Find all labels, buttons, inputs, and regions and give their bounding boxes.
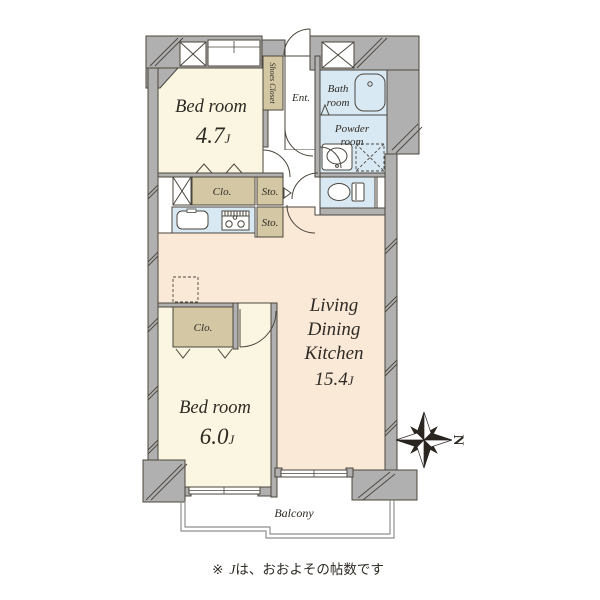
ldk-label-3: Kitchen [303,343,363,364]
wall-bedroom2-top [158,303,237,307]
bedroom-1-label: Bed room [175,97,247,117]
wall-bedroom2-door-stub [233,303,238,349]
wall-right [385,154,397,470]
shoes-closet-label: Shoes Closet [268,62,277,104]
window [189,487,260,494]
wall-bottom-left-block [143,460,185,502]
pillar-icon [173,177,191,205]
wall-right-thick [387,70,419,154]
compass-icon [396,412,452,468]
wall-entrance-bath [315,56,320,177]
ldk-label-2: Dining [307,319,361,340]
wall-entry-stub [262,40,285,56]
ldk-label-1: Living [309,295,359,316]
floor-plan: N Bed room 4.7J Shoes Closet Ent. Bath r… [0,0,600,600]
powder-room-label-2: room [341,136,364,148]
wall-powder-toilet [320,173,385,177]
wall-toilet-bottom [320,208,385,215]
wall-bedroom1-right [263,110,268,147]
door-arc-entrance [284,29,310,55]
closet-2-label: Clo. [194,322,213,334]
toilet-icon [328,183,364,201]
floor-plan-page: N Bed room 4.7J Shoes Closet Ent. Bath r… [0,0,600,600]
closet-1-label: Clo. [213,186,232,198]
powder-room-label-1: Powder [334,123,370,135]
kitchen-sink-icon [177,211,208,229]
bath-room-label-1: Bath [328,83,349,95]
pillar-icon [322,42,354,68]
wall-bedroom1-bottom [158,173,283,177]
bedroom-2-label: Bed room [179,398,251,418]
window [208,40,260,66]
pillar-icon [180,42,206,66]
bedroom-1-floor [158,68,263,173]
storage-2-label: Sto. [262,217,279,229]
kitchen-tap-icon [187,209,196,213]
balcony-label: Balcony [274,506,314,520]
window [281,470,347,477]
entrance-label: Ent. [291,92,310,104]
bath-room-label-2: room [327,97,350,109]
storage-1-label: Sto. [262,186,279,198]
toilet-side-box [377,177,385,208]
stove-icon [222,211,249,230]
ldk-size: 15.4J [314,369,354,390]
north-label: N [450,435,466,446]
note-text: ※Jは、おおよその帖数です [212,562,384,577]
